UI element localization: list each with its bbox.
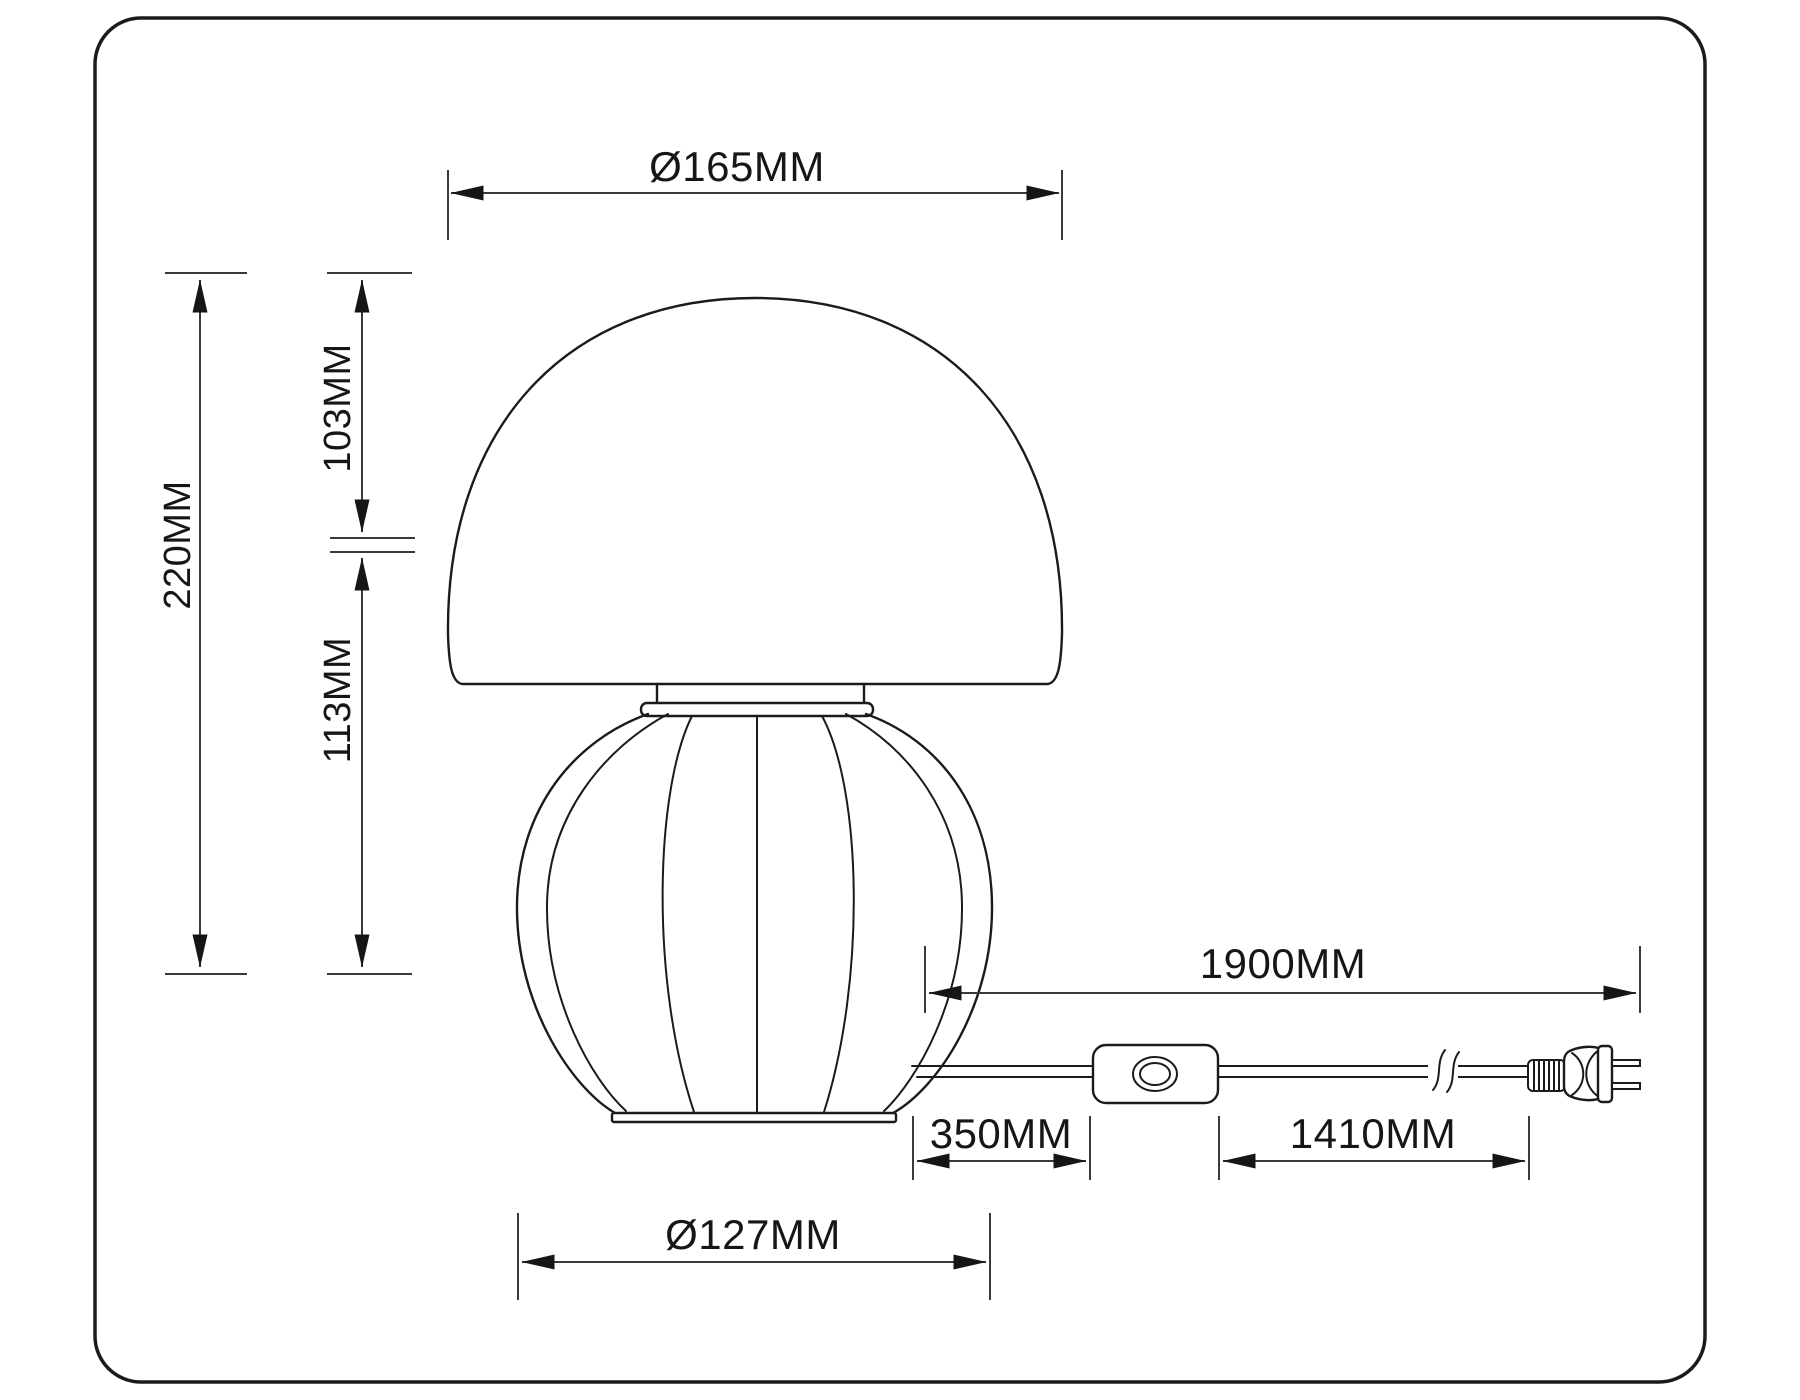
dim-body-height: 113MM [317,558,412,974]
plug-strain-relief [1528,1060,1565,1091]
dim-body-diameter: Ø127MM [518,1211,990,1300]
dim-shade-diameter: Ø165MM [448,143,1062,240]
lamp-body-flute [663,716,694,1112]
power-cord [912,1050,1528,1092]
dim-switch-to-plug: 1410MM [1219,1110,1529,1180]
drawing-canvas: Ø165MM 220MM 103MM 113MM 1900MM 350MM [0,0,1800,1400]
dim-total-height: 220MM [157,273,247,974]
lamp-body-flute [822,716,854,1112]
lamp-body [517,714,992,1113]
dim-label-base-to-switch: 350MM [930,1110,1073,1157]
dim-label-total-height: 220MM [157,480,199,609]
power-cord-assembly [912,1045,1640,1103]
dim-label-cord-total-length: 1900MM [1200,940,1366,987]
dim-label-shade-height: 103MM [317,343,359,472]
plug-prong [1612,1083,1640,1089]
lamp-neck [657,684,864,704]
dim-cord-total-length: 1900MM [925,940,1640,1013]
lamp-base-plate [612,1113,896,1122]
lamp-dimension-drawing: Ø165MM 220MM 103MM 113MM 1900MM 350MM [0,0,1800,1400]
dim-label-switch-to-plug: 1410MM [1290,1110,1456,1157]
dim-base-to-switch: 350MM [913,1110,1090,1180]
lamp-rim [641,703,873,716]
plug-prong [1612,1060,1640,1066]
dim-shade-height: 103MM [317,273,415,552]
table-lamp [448,298,1062,1122]
inline-switch [1093,1045,1218,1103]
lamp-shade [448,298,1062,684]
dim-label-body-diameter: Ø127MM [665,1211,841,1258]
power-plug [1564,1046,1640,1102]
plug-face [1598,1046,1612,1102]
dim-label-body-height: 113MM [317,637,359,763]
dim-label-shade-diameter: Ø165MM [649,143,825,190]
